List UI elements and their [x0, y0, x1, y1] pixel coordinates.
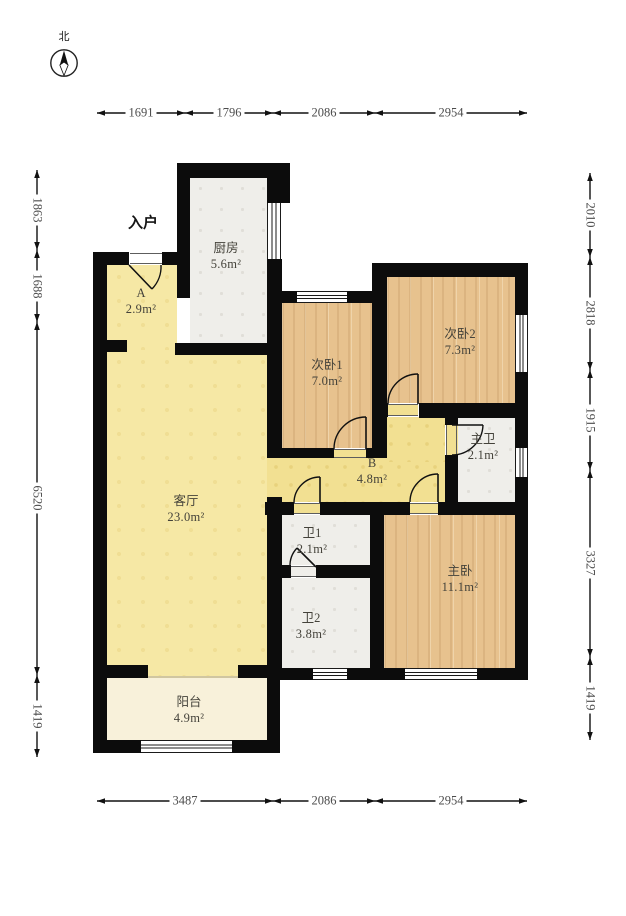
wall-segment	[477, 668, 528, 680]
dim-arrowhead	[367, 110, 375, 116]
room-area: 2.9m²	[126, 301, 157, 317]
door-opening	[294, 503, 320, 514]
room-name: 阳台	[174, 694, 205, 710]
wall-segment	[370, 668, 405, 680]
room-label-bedroom2-2: 次卧2 7.3m²	[444, 326, 475, 358]
window	[405, 668, 477, 680]
room-label-balcony: 阳台 4.9m²	[174, 694, 205, 726]
window	[267, 203, 281, 259]
dim-arrowhead	[97, 798, 105, 804]
compass-north-label: 北	[59, 28, 70, 44]
room-name: 次卧1	[311, 357, 342, 373]
wall-segment	[372, 277, 387, 458]
window	[297, 291, 347, 303]
wall-segment	[107, 340, 127, 352]
dim-arrowhead	[587, 257, 593, 265]
room-label-corridor-b: B 4.8m²	[357, 455, 388, 487]
dim-arrowhead	[375, 798, 383, 804]
dim-arrowhead	[34, 250, 40, 258]
room-area: 4.8m²	[357, 471, 388, 487]
dim-arrowhead	[34, 322, 40, 330]
window	[141, 740, 232, 753]
dim-label-bottom-2: 2954	[436, 795, 467, 808]
dim-arrowhead	[587, 462, 593, 470]
wall-segment	[267, 291, 282, 458]
wall-segment	[370, 502, 384, 680]
floor-plan: 北 入户 厨房 5.6m² A 2.9m² 次卧1 7.0m² 次卧2 7.3m…	[0, 0, 626, 916]
dim-arrowhead	[519, 110, 527, 116]
door-opening	[446, 425, 457, 455]
room-name: 主卫	[468, 431, 499, 447]
dim-label-left-2: 6520	[31, 483, 44, 514]
wall-segment	[232, 740, 280, 753]
room-label-living-room: 客厅 23.0m²	[167, 493, 204, 525]
wall-segment	[175, 343, 280, 355]
dim-arrowhead	[519, 798, 527, 804]
wall-segment	[93, 740, 141, 753]
wall-segment	[372, 403, 388, 417]
room-area: 23.0m²	[167, 509, 204, 525]
room-label-bath1: 卫1 2.1m²	[297, 525, 328, 557]
wall-segment	[267, 448, 334, 458]
wall-segment	[316, 565, 373, 578]
room-floor-corridor-b	[382, 417, 445, 462]
window	[313, 668, 347, 680]
dim-arrowhead	[185, 110, 193, 116]
dim-label-left-1: 1688	[31, 271, 44, 302]
door-opening	[410, 503, 438, 514]
dim-arrowhead	[265, 110, 273, 116]
wall-segment	[267, 497, 282, 680]
dim-arrowhead	[34, 242, 40, 250]
dim-arrowhead	[273, 798, 281, 804]
room-name: B	[357, 455, 388, 471]
room-floor-corridor-b	[267, 458, 282, 497]
dim-arrowhead	[34, 675, 40, 683]
door-opening	[130, 253, 162, 264]
window	[515, 448, 528, 477]
dim-label-bottom-1: 2086	[309, 795, 340, 808]
room-label-hall-a: A 2.9m²	[126, 285, 157, 317]
dim-arrowhead	[587, 370, 593, 378]
room-label-bath2: 卫2 3.8m²	[296, 610, 327, 642]
wall-segment	[445, 403, 458, 425]
room-area: 7.0m²	[311, 373, 342, 389]
dim-label-right-0: 2010	[584, 200, 597, 231]
dim-arrowhead	[265, 798, 273, 804]
wall-segment	[177, 163, 190, 298]
room-name: 主卧	[442, 563, 479, 579]
dim-arrowhead	[375, 110, 383, 116]
dim-arrowhead	[177, 110, 185, 116]
dim-arrowhead	[97, 110, 105, 116]
room-name: 次卧2	[444, 326, 475, 342]
dim-arrowhead	[587, 362, 593, 370]
dim-arrowhead	[587, 470, 593, 478]
wall-segment	[267, 163, 290, 203]
dim-arrowhead	[34, 667, 40, 675]
room-label-master-bath: 主卫 2.1m²	[468, 431, 499, 463]
room-area: 2.1m²	[297, 541, 328, 557]
door-opening	[291, 566, 316, 577]
dim-arrowhead	[587, 657, 593, 665]
room-area: 2.1m²	[468, 447, 499, 463]
room-area: 11.1m²	[442, 579, 479, 595]
room-name: 卫2	[296, 610, 327, 626]
dim-label-right-1: 2818	[584, 298, 597, 329]
dim-label-left-0: 1863	[31, 195, 44, 226]
window	[515, 315, 528, 372]
wall-segment	[372, 263, 528, 277]
dim-label-top-1: 1796	[214, 107, 245, 120]
dim-label-bottom-0: 3487	[170, 795, 201, 808]
room-name: 厨房	[211, 240, 242, 256]
dim-label-left-3: 1419	[31, 701, 44, 732]
dim-arrowhead	[367, 798, 375, 804]
room-name: 卫1	[297, 525, 328, 541]
room-label-kitchen: 厨房 5.6m²	[211, 240, 242, 272]
dim-arrowhead	[34, 314, 40, 322]
dim-arrowhead	[587, 249, 593, 257]
dim-label-top-0: 1691	[126, 107, 157, 120]
room-label-master-bedroom: 主卧 11.1m²	[442, 563, 479, 595]
dim-arrowhead	[273, 110, 281, 116]
dim-label-right-2: 1915	[584, 405, 597, 436]
wall-segment	[93, 252, 129, 265]
dim-arrowhead	[34, 170, 40, 178]
dim-label-top-2: 2086	[309, 107, 340, 120]
dim-label-top-3: 2954	[436, 107, 467, 120]
dim-label-right-3: 3327	[584, 548, 597, 579]
room-name: 客厅	[167, 493, 204, 509]
dim-arrowhead	[587, 732, 593, 740]
dim-arrowhead	[587, 173, 593, 181]
wall-segment	[280, 668, 313, 680]
entrance-label: 入户	[128, 212, 158, 233]
room-area: 5.6m²	[211, 256, 242, 272]
wall-segment	[320, 502, 373, 515]
door-opening	[388, 404, 418, 416]
wall-segment	[419, 403, 528, 418]
dim-arrowhead	[587, 649, 593, 657]
dim-arrowhead	[34, 749, 40, 757]
dim-label-right-4: 1419	[584, 683, 597, 714]
wall-segment	[93, 252, 107, 680]
room-area: 4.9m²	[174, 710, 205, 726]
room-area: 3.8m²	[296, 626, 327, 642]
room-label-bedroom2-1: 次卧1 7.0m²	[311, 357, 342, 389]
room-area: 7.3m²	[444, 342, 475, 358]
wall-segment	[282, 565, 291, 578]
wall-segment	[438, 502, 528, 515]
compass-icon	[46, 45, 82, 81]
wall-segment	[515, 263, 528, 315]
room-name: A	[126, 285, 157, 301]
